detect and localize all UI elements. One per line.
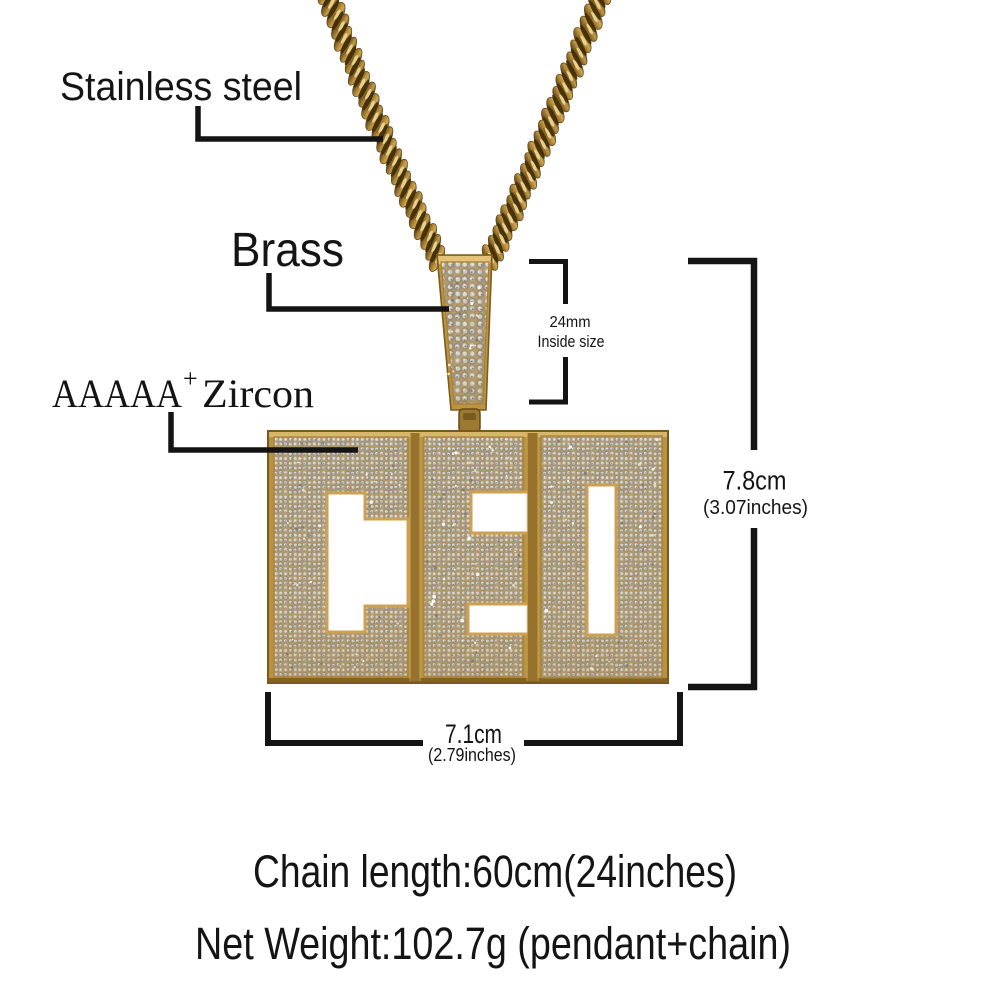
svg-text:Stainless steel: Stainless steel [60,65,302,109]
svg-text:24mm: 24mm [550,314,591,331]
svg-text:Inside size: Inside size [538,333,605,351]
svg-text:Brass: Brass [231,224,344,277]
svg-text:Chain length:60cm(24inches): Chain length:60cm(24inches) [253,846,737,897]
svg-text:Net Weight:102.7g (pendant+cha: Net Weight:102.7g (pendant+chain) [195,918,791,969]
svg-text:(3.07inches): (3.07inches) [703,496,808,519]
svg-text:7.8cm: 7.8cm [723,466,787,496]
svg-text:(2.79inches): (2.79inches) [428,744,516,765]
